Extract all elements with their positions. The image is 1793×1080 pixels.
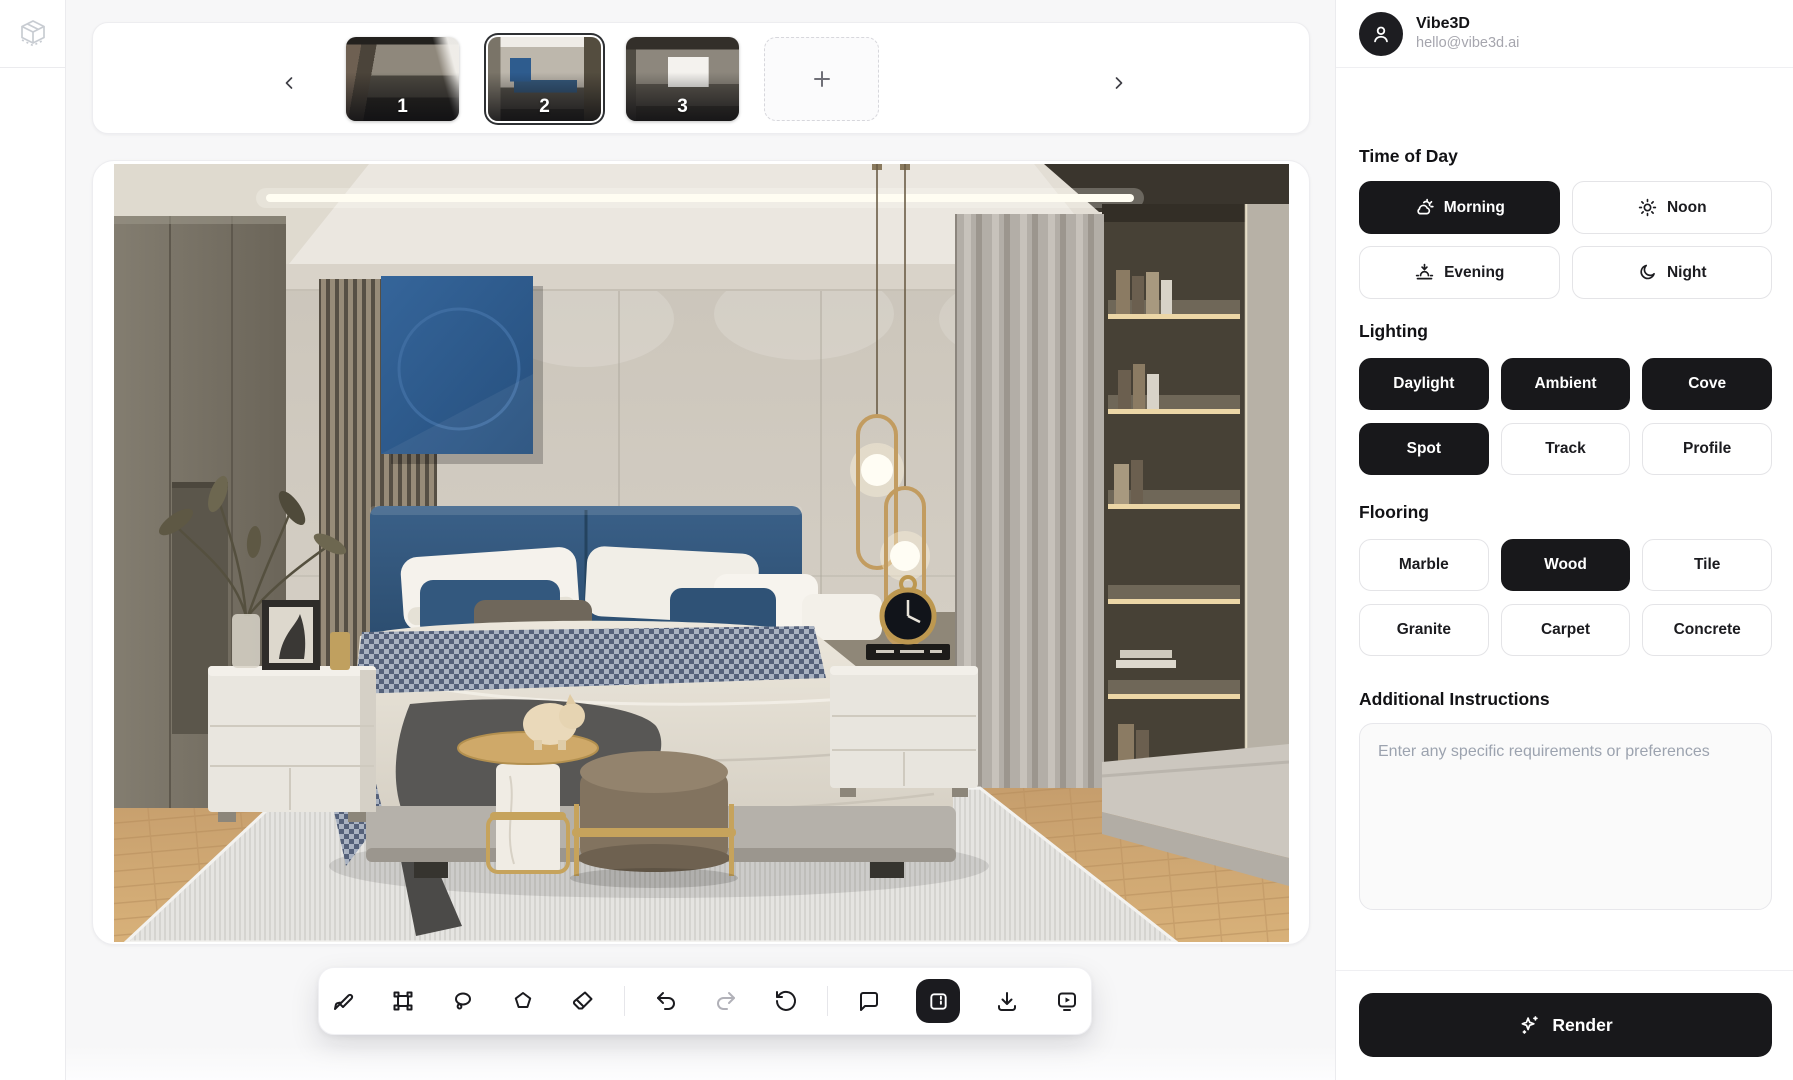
screen-play-button[interactable] <box>1054 988 1080 1014</box>
mini-sidebar <box>0 0 66 1080</box>
user-avatar <box>1359 12 1403 56</box>
transform-select-icon <box>391 989 415 1013</box>
bedroom-render-image <box>114 164 1289 942</box>
scene-thumbnail-3[interactable]: 3 <box>626 37 739 121</box>
flooring-option-carpet[interactable]: Carpet <box>1501 604 1631 656</box>
lighting-option-daylight[interactable]: Daylight <box>1359 358 1489 410</box>
lighting-option-track[interactable]: Track <box>1501 423 1631 475</box>
plus-icon <box>810 67 834 91</box>
render-button[interactable]: Render <box>1359 993 1772 1057</box>
scene-thumbnail-2-selected[interactable]: 2 <box>488 37 601 121</box>
split-compare-icon <box>927 990 950 1013</box>
option-label: Tile <box>1694 556 1720 574</box>
canvas-toolbar <box>318 967 1092 1035</box>
user-email: hello@vibe3d.ai <box>1416 34 1519 53</box>
add-scene-button[interactable] <box>764 37 879 121</box>
comment-icon <box>857 989 881 1013</box>
option-label: Track <box>1545 440 1586 458</box>
option-label: Evening <box>1444 264 1504 282</box>
flooring-option-granite[interactable]: Granite <box>1359 604 1489 656</box>
lighting-options: Daylight Ambient Cove Spot Track Profile <box>1359 358 1772 475</box>
moon-icon <box>1637 262 1658 283</box>
workspace: 1 2 3 <box>66 0 1335 1080</box>
sunset-icon <box>1414 262 1435 283</box>
render-canvas[interactable] <box>114 164 1289 942</box>
toolbar-divider <box>624 986 625 1016</box>
undo-icon <box>654 989 678 1013</box>
time-of-day-heading: Time of Day <box>1359 146 1772 167</box>
thumbnail-number: 1 <box>346 96 459 118</box>
bottom-fade <box>66 1046 1335 1080</box>
option-label: Cove <box>1688 375 1726 393</box>
sparkles-icon <box>1518 1014 1540 1036</box>
option-label: Granite <box>1397 621 1451 639</box>
option-label: Night <box>1667 264 1707 282</box>
download-button[interactable] <box>994 988 1020 1014</box>
option-label: Ambient <box>1534 375 1596 393</box>
eraser-icon <box>571 989 595 1013</box>
settings-body: Time of Day Morning Noon Evening Night L… <box>1336 68 1793 970</box>
toolbar-divider <box>827 986 828 1016</box>
option-label: Marble <box>1399 556 1449 574</box>
user-name: Vibe3D <box>1416 14 1519 35</box>
cloud-sun-icon <box>1414 197 1435 218</box>
lighting-option-cove[interactable]: Cove <box>1642 358 1772 410</box>
sun-icon <box>1637 197 1658 218</box>
option-label: Daylight <box>1393 375 1454 393</box>
user-profile: Vibe3D hello@vibe3d.ai <box>1336 0 1793 68</box>
thumbnail-number: 2 <box>488 96 601 118</box>
paintbrush-tool-button[interactable] <box>330 988 356 1014</box>
option-label: Morning <box>1444 199 1505 217</box>
eraser-tool-button[interactable] <box>570 988 596 1014</box>
time-option-night[interactable]: Night <box>1572 246 1773 299</box>
transform-select-tool-button[interactable] <box>390 988 416 1014</box>
option-label: Profile <box>1683 440 1731 458</box>
thumbnail-number: 3 <box>626 96 739 118</box>
flooring-heading: Flooring <box>1359 502 1772 523</box>
lighting-heading: Lighting <box>1359 321 1772 342</box>
chevron-left-icon <box>279 73 299 93</box>
lighting-option-spot[interactable]: Spot <box>1359 423 1489 475</box>
additional-instructions-heading: Additional Instructions <box>1359 689 1772 710</box>
settings-panel: Vibe3D hello@vibe3d.ai Time of Day Morni… <box>1335 0 1793 1080</box>
chevron-right-icon <box>1109 73 1129 93</box>
redo-button[interactable] <box>713 988 739 1014</box>
rotate-ccw-icon <box>774 989 798 1013</box>
time-option-evening[interactable]: Evening <box>1359 246 1560 299</box>
paintbrush-icon <box>331 989 355 1013</box>
flooring-option-concrete[interactable]: Concrete <box>1642 604 1772 656</box>
option-label: Noon <box>1667 199 1707 217</box>
polygon-tool-button[interactable] <box>510 988 536 1014</box>
panel-footer: Render <box>1336 970 1793 1080</box>
option-label: Carpet <box>1541 621 1590 639</box>
flooring-options: Marble Wood Tile Granite Carpet Concrete <box>1359 539 1772 656</box>
render-button-label: Render <box>1552 1015 1612 1036</box>
vibe3d-logo-icon <box>16 17 50 51</box>
flooring-option-marble[interactable]: Marble <box>1359 539 1489 591</box>
split-compare-tool-button[interactable] <box>916 979 960 1023</box>
carousel-prev-button[interactable] <box>271 65 307 101</box>
lasso-icon <box>451 989 475 1013</box>
scene-carousel: 1 2 3 <box>92 22 1310 134</box>
time-of-day-options: Morning Noon Evening Night <box>1359 181 1772 299</box>
scene-thumbnail-1[interactable]: 1 <box>346 37 459 121</box>
render-canvas-card <box>92 160 1310 945</box>
reset-rotate-button[interactable] <box>773 988 799 1014</box>
app-logo[interactable] <box>0 0 65 68</box>
polygon-icon <box>511 989 535 1013</box>
option-label: Spot <box>1407 440 1441 458</box>
undo-button[interactable] <box>653 988 679 1014</box>
lighting-option-profile[interactable]: Profile <box>1642 423 1772 475</box>
flooring-option-tile[interactable]: Tile <box>1642 539 1772 591</box>
option-label: Concrete <box>1674 621 1741 639</box>
carousel-next-button[interactable] <box>1101 65 1137 101</box>
redo-icon <box>714 989 738 1013</box>
additional-instructions-input[interactable] <box>1359 723 1772 910</box>
option-label: Wood <box>1544 556 1587 574</box>
user-icon <box>1370 23 1392 45</box>
download-icon <box>995 989 1019 1013</box>
lighting-option-ambient[interactable]: Ambient <box>1501 358 1631 410</box>
screen-play-icon <box>1055 989 1079 1013</box>
lasso-tool-button[interactable] <box>450 988 476 1014</box>
comment-tool-button[interactable] <box>856 988 882 1014</box>
flooring-option-wood[interactable]: Wood <box>1501 539 1631 591</box>
time-option-noon[interactable]: Noon <box>1572 181 1773 234</box>
time-option-morning[interactable]: Morning <box>1359 181 1560 234</box>
